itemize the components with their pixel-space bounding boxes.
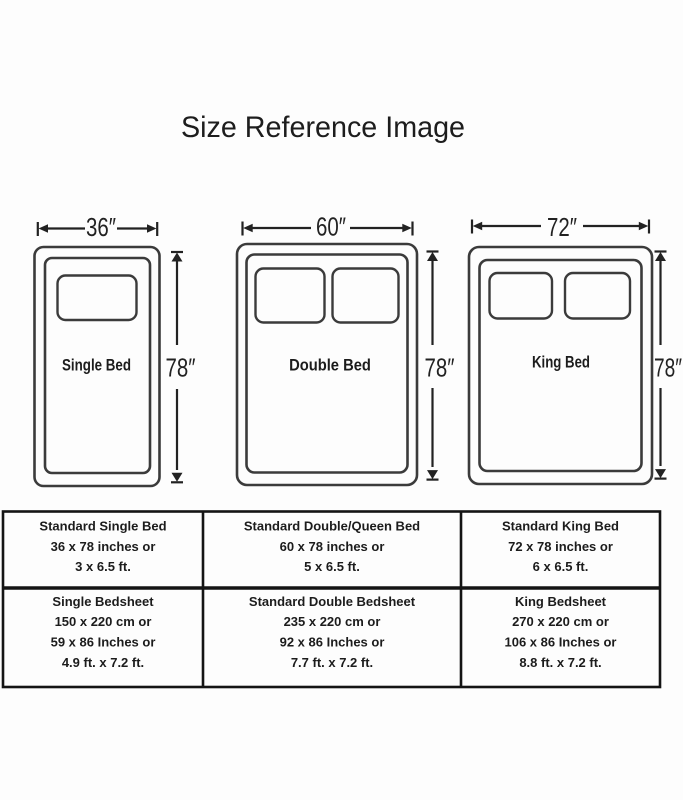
svg-text:Single Bed: Single Bed [62, 356, 131, 375]
svg-text:Single Bedsheet: Single Bedsheet [52, 594, 154, 609]
svg-text:59 x 86 Inches or: 59 x 86 Inches or [51, 635, 156, 650]
svg-text:78″: 78″ [425, 353, 455, 382]
svg-text:78″: 78″ [166, 353, 196, 382]
svg-text:King Bed: King Bed [532, 353, 590, 372]
svg-text:Standard Double Bedsheet: Standard Double Bedsheet [249, 594, 416, 609]
svg-text:King Bedsheet: King Bedsheet [515, 594, 607, 609]
svg-text:235 x 220 cm or: 235 x 220 cm or [284, 614, 381, 629]
svg-text:Standard Single Bed: Standard Single Bed [39, 519, 166, 534]
svg-text:36 x 78 inches or: 36 x 78 inches or [51, 539, 156, 554]
svg-text:72″: 72″ [547, 213, 577, 242]
svg-text:60 x 78 inches or: 60 x 78 inches or [280, 539, 385, 554]
svg-text:78″: 78″ [654, 353, 682, 383]
svg-text:270 x 220 cm or: 270 x 220 cm or [512, 614, 609, 629]
svg-text:60″: 60″ [316, 212, 346, 241]
svg-text:36″: 36″ [86, 213, 116, 242]
svg-text:72 x 78 inches or: 72 x 78 inches or [508, 539, 613, 554]
svg-text:Size Reference Image: Size Reference Image [181, 110, 465, 144]
svg-text:Standard Double/Queen Bed: Standard Double/Queen Bed [244, 519, 420, 534]
svg-text:3 x 6.5 ft.: 3 x 6.5 ft. [75, 559, 131, 574]
svg-text:106 x 86 Inches or: 106 x 86 Inches or [504, 635, 616, 650]
svg-text:5 x 6.5 ft.: 5 x 6.5 ft. [304, 559, 360, 574]
svg-text:Standard King Bed: Standard King Bed [502, 519, 619, 534]
svg-text:92 x 86 Inches or: 92 x 86 Inches or [280, 635, 385, 650]
svg-text:150 x 220 cm or: 150 x 220 cm or [55, 614, 152, 629]
svg-text:6 x 6.5 ft.: 6 x 6.5 ft. [533, 559, 589, 574]
svg-text:4.9 ft. x 7.2 ft.: 4.9 ft. x 7.2 ft. [62, 655, 144, 670]
svg-text:8.8 ft. x 7.2 ft.: 8.8 ft. x 7.2 ft. [519, 655, 601, 670]
svg-text:Double Bed: Double Bed [289, 357, 371, 375]
svg-text:7.7 ft. x 7.2 ft.: 7.7 ft. x 7.2 ft. [291, 655, 373, 670]
